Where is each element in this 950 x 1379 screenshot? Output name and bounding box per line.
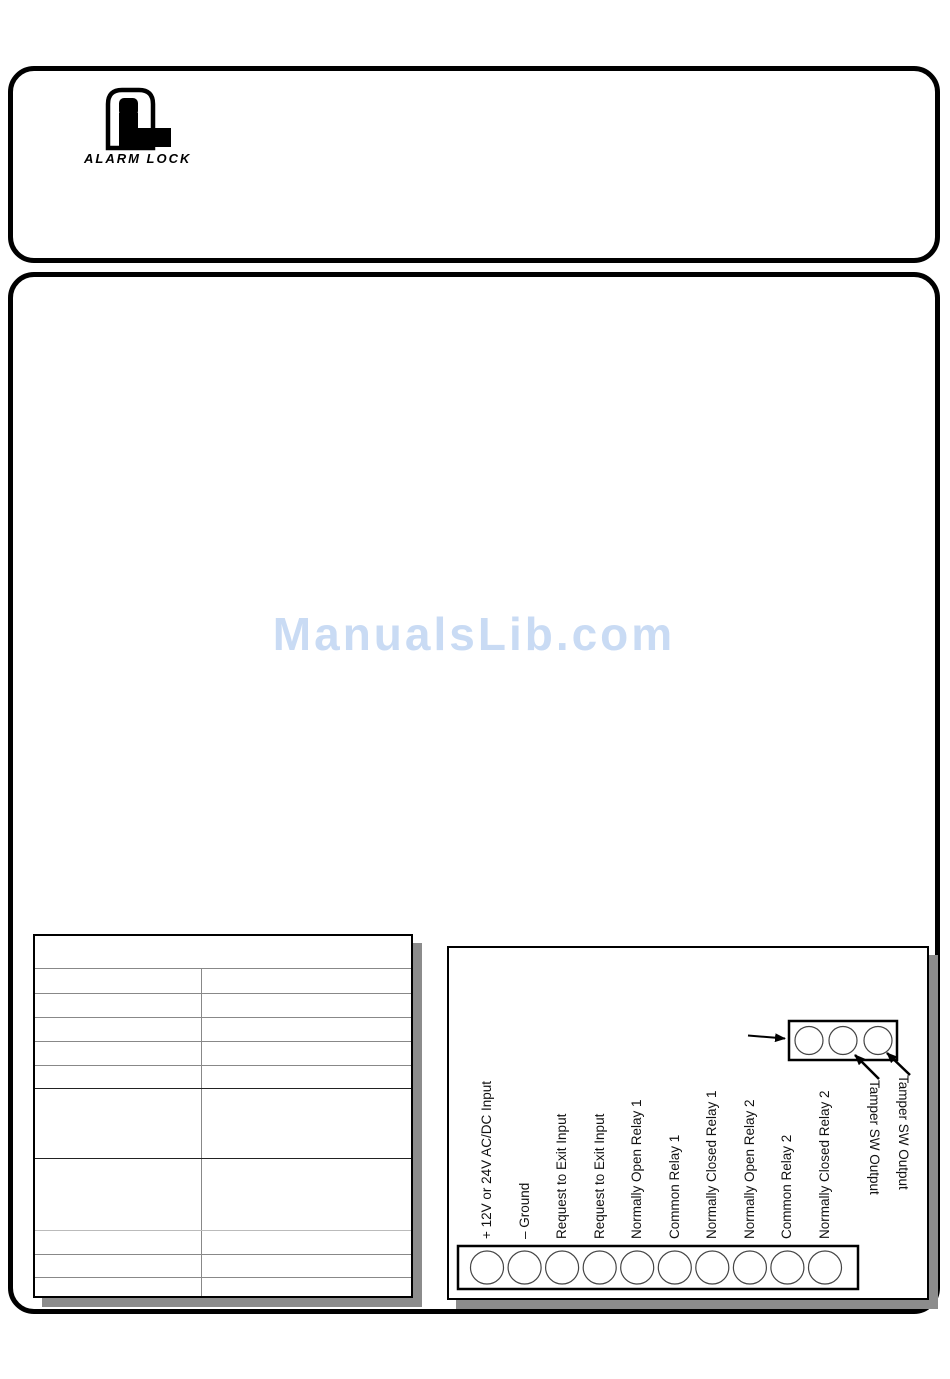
wiring-diagram: + 12V or 24V AC/DC Input – Ground Reques… xyxy=(447,946,929,1300)
logo-foot xyxy=(119,128,171,147)
terminal-label: Normally Closed Relay 1 xyxy=(705,1090,719,1239)
tamper-circle xyxy=(864,1027,892,1055)
table-cell xyxy=(35,1159,202,1230)
terminal-circle xyxy=(809,1251,842,1284)
terminal-circle xyxy=(471,1251,504,1284)
tamper-circle xyxy=(795,1027,823,1055)
tamper-label: Tamper SW Output xyxy=(896,1075,910,1190)
table-row xyxy=(35,1277,411,1296)
brand-panel: ALARM LOCK xyxy=(8,66,940,263)
table-cell xyxy=(202,1278,411,1296)
diagram-graphics xyxy=(449,948,927,1298)
table-row xyxy=(35,1230,411,1254)
table-cell xyxy=(202,969,411,993)
tamper-circle xyxy=(829,1027,857,1055)
terminal-label: Common Relay 2 xyxy=(780,1135,794,1239)
table-cell xyxy=(202,1255,411,1277)
table-cell xyxy=(202,994,411,1017)
watermark: ManualsLib.com xyxy=(13,608,935,661)
table-cell xyxy=(35,994,202,1017)
table-cell xyxy=(202,1018,411,1041)
table-cell xyxy=(202,1066,411,1088)
table-row xyxy=(35,1017,411,1041)
content-panel: ManualsLib.com xyxy=(8,272,940,1314)
table-cell xyxy=(35,1278,202,1296)
table-row xyxy=(35,1041,411,1065)
table-header-row xyxy=(35,936,411,968)
arrow-icon xyxy=(887,1053,910,1075)
table-cell xyxy=(35,1231,202,1254)
tamper-label: Tamper SW Output xyxy=(867,1080,881,1195)
table-row xyxy=(35,993,411,1017)
terminal-label: Normally Open Relay 2 xyxy=(743,1099,757,1239)
table-cell xyxy=(35,969,202,993)
terminal-label: Request to Exit Input xyxy=(555,1114,569,1239)
table-row xyxy=(35,968,411,993)
table-cell xyxy=(202,1159,411,1230)
table-row xyxy=(35,1254,411,1277)
terminal-circle xyxy=(733,1251,766,1284)
table-cell xyxy=(202,1089,411,1158)
tamper-circles xyxy=(795,1027,892,1055)
terminal-label: – Ground xyxy=(518,1183,532,1239)
terminal-label: Request to Exit Input xyxy=(593,1114,607,1239)
table-cell xyxy=(35,1042,202,1065)
terminal-label: Common Relay 1 xyxy=(668,1135,682,1239)
terminal-label: + 12V or 24V AC/DC Input xyxy=(480,1081,494,1239)
table-row xyxy=(35,1065,411,1088)
brand-wordmark: ALARM LOCK xyxy=(84,151,214,166)
spec-table xyxy=(33,934,413,1298)
table-row xyxy=(35,1158,411,1230)
terminal-circle xyxy=(508,1251,541,1284)
table-cell xyxy=(35,1255,202,1277)
table-cell xyxy=(35,1089,202,1158)
terminal-circle xyxy=(583,1251,616,1284)
table-cell xyxy=(202,1042,411,1065)
terminal-circle xyxy=(658,1251,691,1284)
terminal-label: Normally Open Relay 1 xyxy=(630,1099,644,1239)
terminal-circle xyxy=(696,1251,729,1284)
table-row xyxy=(35,1088,411,1158)
terminal-circle xyxy=(621,1251,654,1284)
manual-page: ALARM LOCK ManualsLib.com xyxy=(0,0,950,1379)
table-cell xyxy=(202,1231,411,1254)
terminal-circle xyxy=(771,1251,804,1284)
arrow-icon xyxy=(748,1036,785,1039)
terminal-label: Normally Closed Relay 2 xyxy=(818,1090,832,1239)
table-cell xyxy=(35,1018,202,1041)
alarm-lock-logo xyxy=(105,87,173,151)
terminal-circle xyxy=(546,1251,579,1284)
table-cell xyxy=(35,1066,202,1088)
